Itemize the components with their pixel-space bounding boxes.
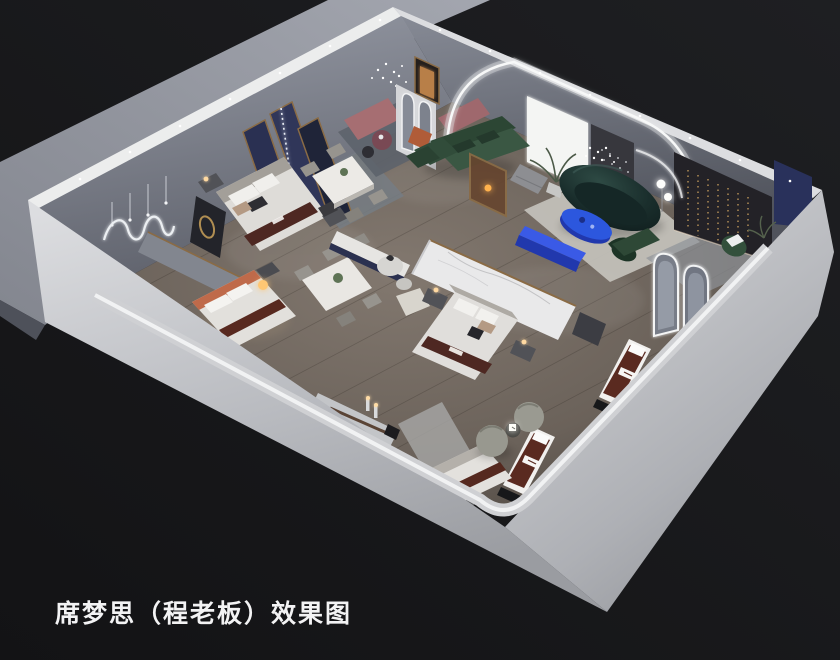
stool bbox=[396, 278, 412, 290]
side-table-dark bbox=[362, 146, 374, 158]
table-plant bbox=[333, 273, 343, 283]
showroom-render bbox=[0, 0, 840, 660]
caption: 席梦思（程老板）效果图 bbox=[55, 594, 352, 630]
arched-led-mirror bbox=[654, 254, 678, 336]
table-plant bbox=[340, 168, 348, 176]
sphere-lamp bbox=[258, 280, 268, 290]
render-canvas: 席梦思（程老板）效果图 bbox=[0, 0, 840, 660]
wine-glass-table bbox=[372, 130, 392, 150]
